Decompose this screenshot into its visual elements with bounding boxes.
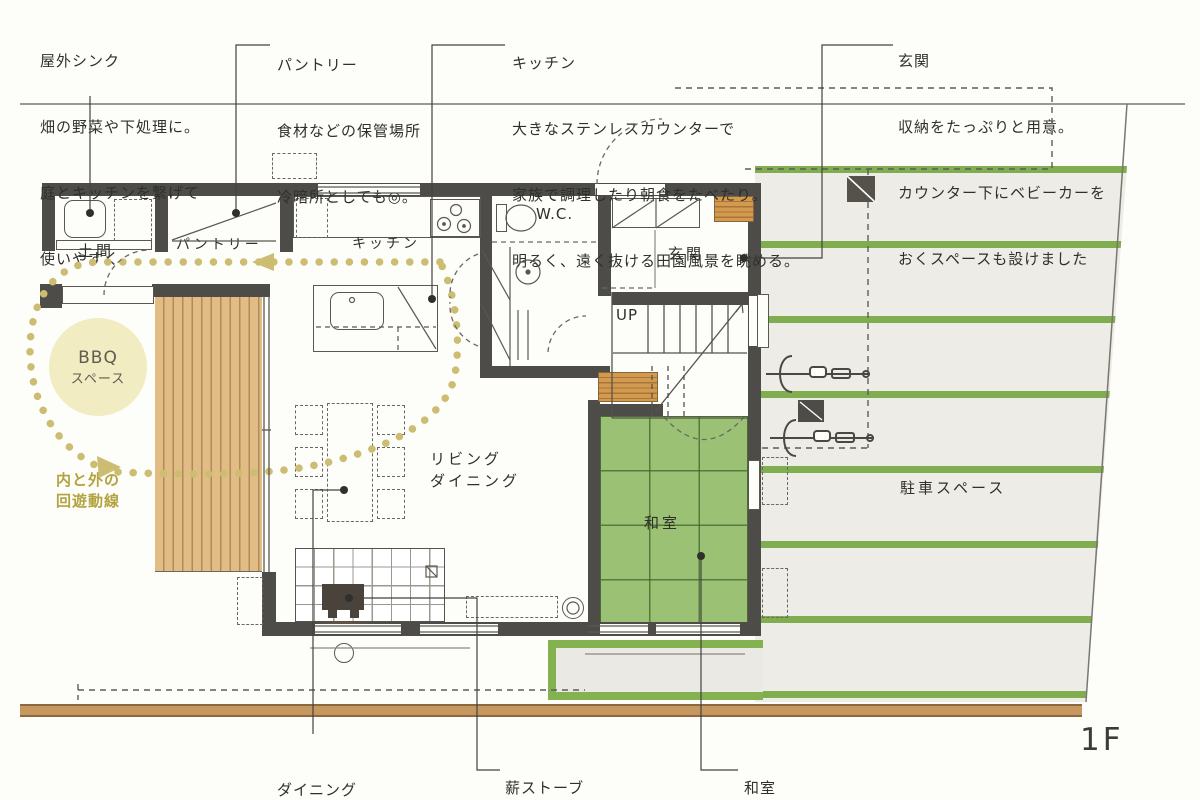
- dining-chair: [377, 489, 405, 519]
- floor-label-1f: 1F: [1080, 722, 1124, 758]
- dining-chair: [295, 405, 323, 435]
- room-label-washitsu: 和室: [644, 512, 680, 533]
- bbq-area: BBQ スペース: [49, 318, 147, 416]
- annotation-washitsu: 和室 リビングの床より少し高くした 畳コーナー。客間としても使える。: [744, 733, 998, 800]
- wood-fence: [20, 704, 1082, 717]
- annotation-title: ダイニング: [277, 779, 421, 800]
- annotation-line: おくスペースも設けました: [898, 248, 1106, 270]
- annotation-title: 玄関: [898, 50, 1106, 72]
- yard-unit-dashed: [762, 568, 788, 618]
- annotation-line: カウンター下にベビーカーを: [898, 182, 1106, 204]
- annotation-line: 家族で調理したり朝食をたべたり。: [512, 184, 800, 206]
- annotation-title: パントリー: [277, 54, 421, 76]
- wall-southwest-corner: [262, 572, 276, 636]
- annotation-line: 冷暗所としても◎。: [277, 186, 421, 208]
- annotation-line: 大きなステンレスカウンターで: [512, 118, 800, 140]
- dining-chair: [295, 447, 323, 477]
- room-label-living-1: リビング: [430, 448, 502, 469]
- bbq-label: BBQ: [78, 348, 118, 368]
- dining-chair: [377, 405, 405, 435]
- annotation-entrance: 玄関 収納をたっぷりと用意。 カウンター下にベビーカーを おくスペースも設けまし…: [898, 6, 1106, 314]
- room-label-living-2: ダイニング: [430, 470, 520, 491]
- circulation-note: 内と外の 回遊動線: [56, 470, 120, 512]
- dining-chair: [377, 447, 405, 477]
- annotation-line: 収納をたっぷりと用意。: [898, 116, 1106, 138]
- stepping-stone: [334, 643, 354, 663]
- annotation-title: 屋外シンク: [40, 50, 200, 72]
- island-sink: [330, 292, 384, 330]
- stove-hearth-tiles: [295, 548, 445, 622]
- south-window-1: [315, 624, 401, 634]
- toilet-tank: [496, 204, 507, 232]
- circulation-line-2: 回遊動線: [56, 492, 120, 510]
- bbq-label-2: スペース: [71, 368, 125, 387]
- stove-leg: [350, 609, 359, 618]
- stair-wood-bench: [598, 372, 658, 402]
- wall-wc-west: [480, 196, 492, 376]
- room-label-parking: 駐車スペース: [900, 477, 1006, 498]
- annotation-line: 使いやすく。: [40, 248, 200, 270]
- wall-tatami-north: [588, 404, 663, 416]
- annotation-dining: ダイニング 庭と炎を楽しむ食卓: [277, 735, 421, 800]
- floor-plan-page: BBQ スペース: [0, 0, 1200, 800]
- gas-stove: [430, 199, 480, 237]
- south-window-4: [656, 624, 740, 634]
- annotation-line: 明るく、遠く抜ける田園風景を眺める。: [512, 250, 800, 272]
- annotation-wood-stove: 薪ストーブ 単に暖房だけでなく、 料理にも活躍。: [505, 733, 665, 800]
- wall-washroom-south: [480, 366, 610, 378]
- tatami-east-door: [748, 460, 760, 510]
- plant-pot: [562, 597, 584, 619]
- wood-deck: [155, 296, 262, 572]
- window-bench-dashed: [466, 596, 558, 618]
- wall-tatami-west: [588, 400, 600, 636]
- annotation-kitchen: キッチン 大きなステンレスカウンターで 家族で調理したり朝食をたべたり。 明るく…: [512, 8, 800, 316]
- stove-leg: [328, 609, 337, 618]
- dining-chair: [295, 489, 323, 519]
- south-window-2: [420, 624, 498, 634]
- annotation-outdoor-sink: 屋外シンク 畑の野菜や下処理に。 庭とキッチンを繋げて 使いやすく。: [40, 6, 200, 314]
- dining-table: [327, 403, 373, 522]
- annotation-pantry: パントリー 食材などの保管場所 冷暗所としても◎。: [277, 10, 421, 252]
- circulation-line-1: 内と外の: [56, 471, 120, 489]
- annotation-line: 畑の野菜や下処理に。: [40, 116, 200, 138]
- annotation-line: 庭とキッチンを繋げて: [40, 182, 200, 204]
- annotation-title: 和室: [744, 777, 998, 799]
- deck-planter-dashed: [237, 577, 263, 625]
- yard-unit-dashed: [762, 457, 788, 505]
- annotation-title: キッチン: [512, 52, 800, 74]
- garden-path: [548, 640, 763, 700]
- wood-stove: [322, 584, 364, 610]
- annotation-line: 食材などの保管場所: [277, 120, 421, 142]
- annotation-title: 薪ストーブ: [505, 777, 665, 799]
